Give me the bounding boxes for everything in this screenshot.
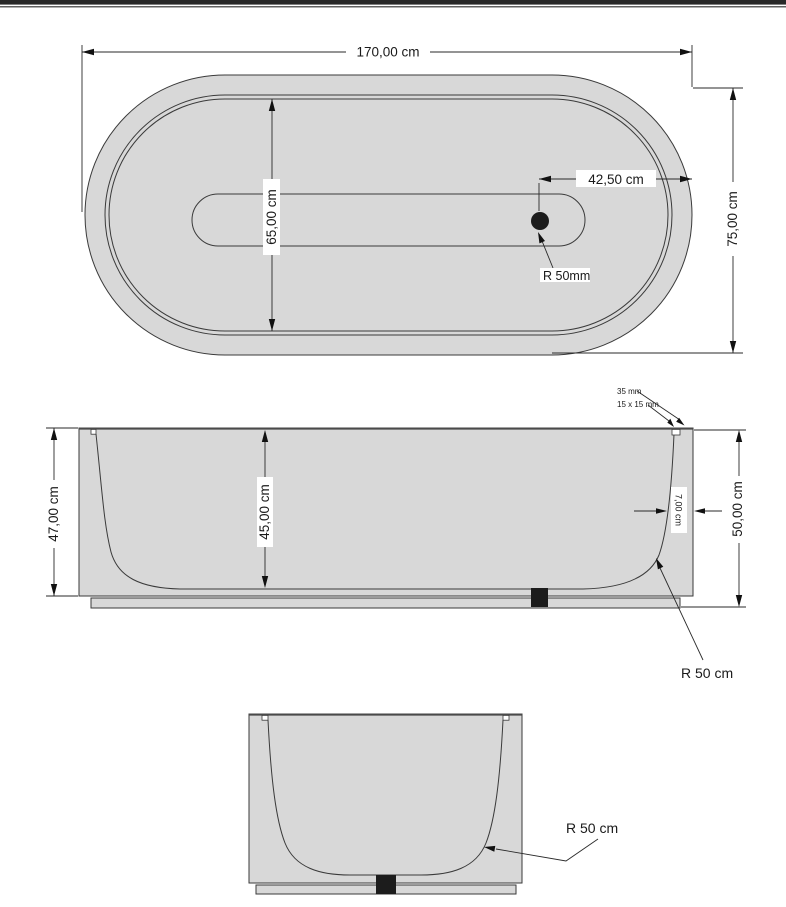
arrowhead-up xyxy=(736,430,742,442)
label-drain-radius: R 50mm xyxy=(543,269,590,283)
arrowhead xyxy=(676,418,684,426)
top-rule-bar xyxy=(0,0,786,5)
arrowhead-left xyxy=(82,49,94,55)
label-rim-width: 35 mm xyxy=(617,387,642,396)
arrowhead-right xyxy=(680,49,692,55)
plan-view: 170,00 cm 65,00 cm 42,50 cm xyxy=(82,45,743,356)
plan-drain-hole xyxy=(531,212,549,230)
dim-label-basin-width: 65,00 cm xyxy=(264,189,279,245)
label-rim-notch: 15 x 15 mm xyxy=(617,400,659,409)
drawing-page: 170,00 cm 65,00 cm 42,50 cm xyxy=(0,0,786,907)
label-corner-radius: R 50 cm xyxy=(681,665,733,681)
dim-label-wall-thickness: 7,00 cm xyxy=(674,494,684,526)
dim-label-total-height: 50,00 cm xyxy=(730,481,745,537)
arrowhead-down xyxy=(730,341,736,353)
side-rim-notch-left xyxy=(91,429,96,434)
side-rim-notch-callout: 15 x 15 mm xyxy=(617,400,674,427)
end-rim-notch-right xyxy=(503,715,509,720)
arrowhead-up xyxy=(730,88,736,100)
end-elevation-view: R 50 cm xyxy=(249,714,618,894)
bathtub-technical-drawing: 170,00 cm 65,00 cm 42,50 cm xyxy=(0,0,786,907)
arrowhead-left xyxy=(694,508,705,514)
side-drain-block xyxy=(531,588,548,607)
top-rule-line xyxy=(0,6,786,7)
arrowhead-up xyxy=(51,428,57,440)
arrowhead-down xyxy=(51,584,57,596)
side-rim-notch-right xyxy=(672,429,680,435)
dim-label-drain-offset: 42,50 cm xyxy=(588,172,644,187)
side-elevation-view: 47,00 cm 45,00 cm 35 mm 15 x 15 mm xyxy=(46,387,746,681)
page-top-rule xyxy=(0,0,786,7)
label-corner-radius: R 50 cm xyxy=(566,820,618,836)
end-rim-notch-left xyxy=(262,715,268,720)
dim-label-overall-width: 170,00 cm xyxy=(356,45,419,60)
dim-label-overall-depth: 75,00 cm xyxy=(725,191,740,247)
arrowhead xyxy=(667,419,674,427)
side-plinth-base xyxy=(91,598,680,608)
side-tub-body xyxy=(79,428,693,596)
end-drain-block xyxy=(376,875,396,894)
end-tub-body xyxy=(249,714,522,883)
plan-tub-outer-rim xyxy=(85,75,692,355)
side-dim-body-height: 47,00 cm xyxy=(46,428,78,596)
dim-label-basin-depth: 45,00 cm xyxy=(257,484,272,540)
dim-label-body-height: 47,00 cm xyxy=(46,486,61,542)
arrowhead-down xyxy=(736,595,742,607)
